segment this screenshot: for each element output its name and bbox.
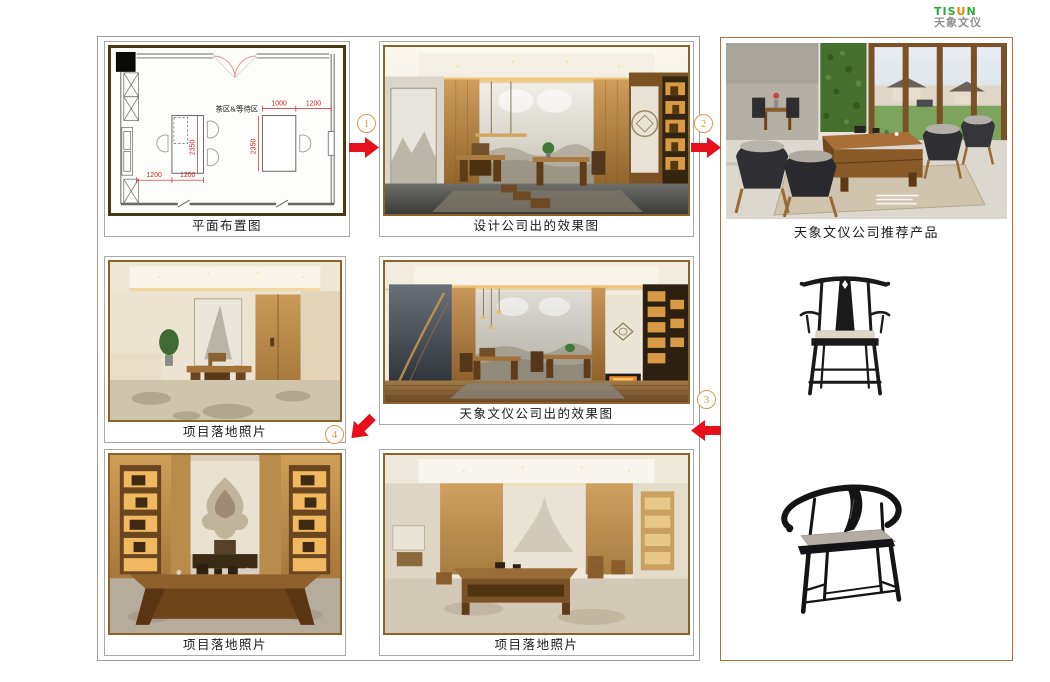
svg-text:2350: 2350 <box>190 140 197 156</box>
tisun-render-image <box>383 260 690 404</box>
project-photo-left-scene <box>110 262 340 420</box>
arrow-down-left-icon <box>344 410 380 446</box>
potted-plant <box>159 329 179 355</box>
project-photo-bottom-left-caption: 项目落地照片 <box>108 635 342 652</box>
product-showroom-scene <box>726 43 1007 219</box>
svg-text:1200: 1200 <box>180 172 195 179</box>
arrow-left-icon <box>691 420 721 441</box>
logo-brand-text: TISUN <box>934 6 982 18</box>
floor-plan-caption: 平面布置图 <box>108 216 346 233</box>
product-chair-official-hat <box>789 249 901 417</box>
step-3-badge: 3 <box>697 390 716 409</box>
project-photo-left-panel: 项目落地照片 <box>104 256 346 443</box>
product-code-text-lines <box>877 195 919 205</box>
arrow-right-icon <box>691 137 721 158</box>
project-photo-bottom-left-panel: 项目落地照片 <box>104 449 346 656</box>
design-render-panel: 设计公司出的效果图 <box>379 41 694 237</box>
official-hat-chair-drawing <box>789 249 901 417</box>
recommended-product-photo <box>726 43 1007 219</box>
project-photo-bottom-left-scene <box>110 455 340 633</box>
left-console <box>393 526 424 566</box>
svg-text:1000: 1000 <box>271 101 286 108</box>
svg-text:1200: 1200 <box>147 172 162 179</box>
recommended-products-panel: 天象文仪公司推荐产品 <box>720 37 1013 661</box>
design-render-caption: 设计公司出的效果图 <box>383 216 690 233</box>
step-1-badge: 1 <box>357 114 376 133</box>
project-photo-bottom-mid-panel: 项目落地照片 <box>379 449 694 656</box>
floor-plan-image: 1000 1200 1200 1200 2350 2350 茶区&等待区 <box>108 45 346 216</box>
left-display-cabinet <box>120 465 161 574</box>
product-chair-circle <box>769 464 921 624</box>
right-display-cabinet <box>289 465 330 574</box>
svg-text:2350: 2350 <box>251 139 258 155</box>
circle-chair-drawing <box>769 464 921 624</box>
floor-plan-panel: 1000 1200 1200 1200 2350 2350 茶区&等待区 平面布… <box>104 41 350 237</box>
project-photo-bottom-mid-image <box>383 453 690 635</box>
floor-plan-solid-column <box>116 52 136 72</box>
tisun-render-scene <box>385 262 688 402</box>
project-photo-bottom-mid-scene <box>385 455 688 633</box>
project-photo-left-image <box>108 260 342 422</box>
recommended-products-caption: 天象文仪公司推荐产品 <box>721 222 1012 240</box>
floor-plan-drawing: 1000 1200 1200 1200 2350 2350 茶区&等待区 <box>111 48 343 213</box>
step-2-badge: 2 <box>694 114 713 133</box>
project-photo-left-caption: 项目落地照片 <box>108 422 342 439</box>
tisun-render-caption: 天象文仪公司出的效果图 <box>383 404 690 421</box>
tisun-logo: TISUN 天象文仪 <box>934 6 982 29</box>
project-photo-bottom-mid-caption: 项目落地照片 <box>383 635 690 652</box>
step-4-badge: 4 <box>325 425 344 444</box>
project-photo-bottom-left-image <box>108 453 342 635</box>
floor-plan-area-label: 茶区&等待区 <box>216 104 259 114</box>
arrow-right-icon <box>349 137 379 158</box>
tisun-render-panel: 天象文仪公司出的效果图 <box>379 256 694 425</box>
logo-chinese-text: 天象文仪 <box>934 18 982 30</box>
design-render-image <box>383 45 690 216</box>
right-shelf-niches <box>641 491 674 570</box>
design-render-scene <box>385 47 688 214</box>
svg-text:1200: 1200 <box>306 101 321 108</box>
linear-pendant-lamp <box>476 133 527 136</box>
